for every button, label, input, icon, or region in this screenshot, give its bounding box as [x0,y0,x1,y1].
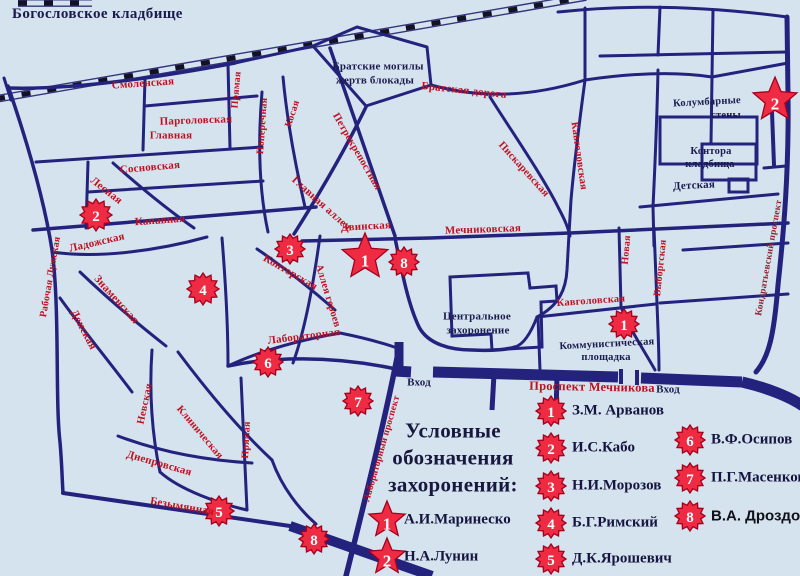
road [143,78,145,150]
road [764,166,786,168]
boundary-wall [492,374,494,410]
star-number: 3 [547,480,555,496]
star-number: 7 [686,472,694,488]
star-number: 3 [286,243,294,259]
star-number: 5 [215,505,223,521]
star-number: 2 [383,551,392,570]
road [619,228,621,307]
star-number: 5 [547,553,555,569]
road [711,77,712,143]
road [538,317,540,370]
star-number: 4 [199,283,207,299]
road [712,10,713,77]
road [228,64,230,148]
map-canvas: 122384675811212345678 [0,0,800,576]
star-number: 4 [547,517,555,533]
star-number: 6 [264,356,272,372]
star-number: 2 [771,94,780,113]
boundary-wall [395,371,411,372]
star-number: 8 [686,510,694,526]
star-number: 2 [547,442,555,458]
star-number: 8 [400,256,408,272]
star-number: 7 [354,395,362,411]
star-number: 1 [620,318,628,334]
boundary-wall [433,372,618,377]
star-number: 6 [686,434,694,450]
road [658,7,660,55]
star-number: 2 [92,209,100,225]
star-number: 1 [383,514,392,533]
boundary-wall [641,378,742,382]
cemetery-map: 122384675811212345678 Богословское кладб… [0,0,800,576]
star-number: 1 [547,405,555,421]
road [772,112,774,165]
star-number: 8 [310,533,318,549]
star-number: 1 [361,251,370,270]
